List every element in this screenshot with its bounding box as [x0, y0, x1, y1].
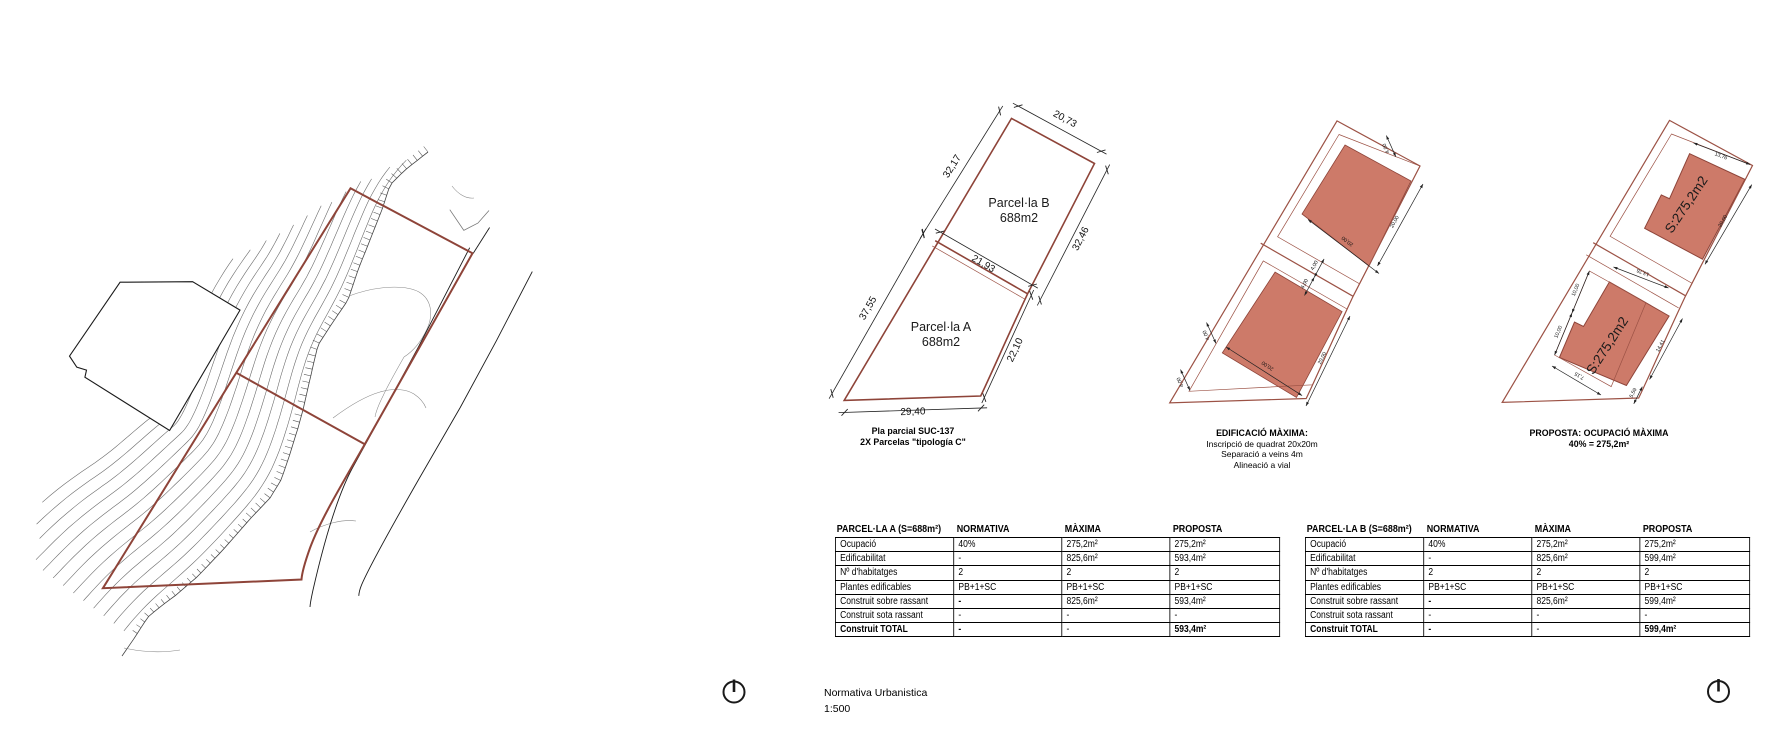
svg-text:13,76: 13,76 [1714, 151, 1728, 161]
svg-text:32,46: 32,46 [1070, 225, 1091, 253]
svg-text:20,73: 20,73 [1051, 109, 1079, 131]
svg-text:22,10: 22,10 [1005, 336, 1026, 364]
svg-text:7,15: 7,15 [1574, 370, 1586, 380]
svg-text:29,40: 29,40 [900, 406, 926, 418]
svg-text:37,55: 37,55 [857, 294, 879, 322]
svg-text:32,17: 32,17 [941, 153, 964, 180]
svg-text:13,76: 13,76 [1636, 267, 1650, 277]
